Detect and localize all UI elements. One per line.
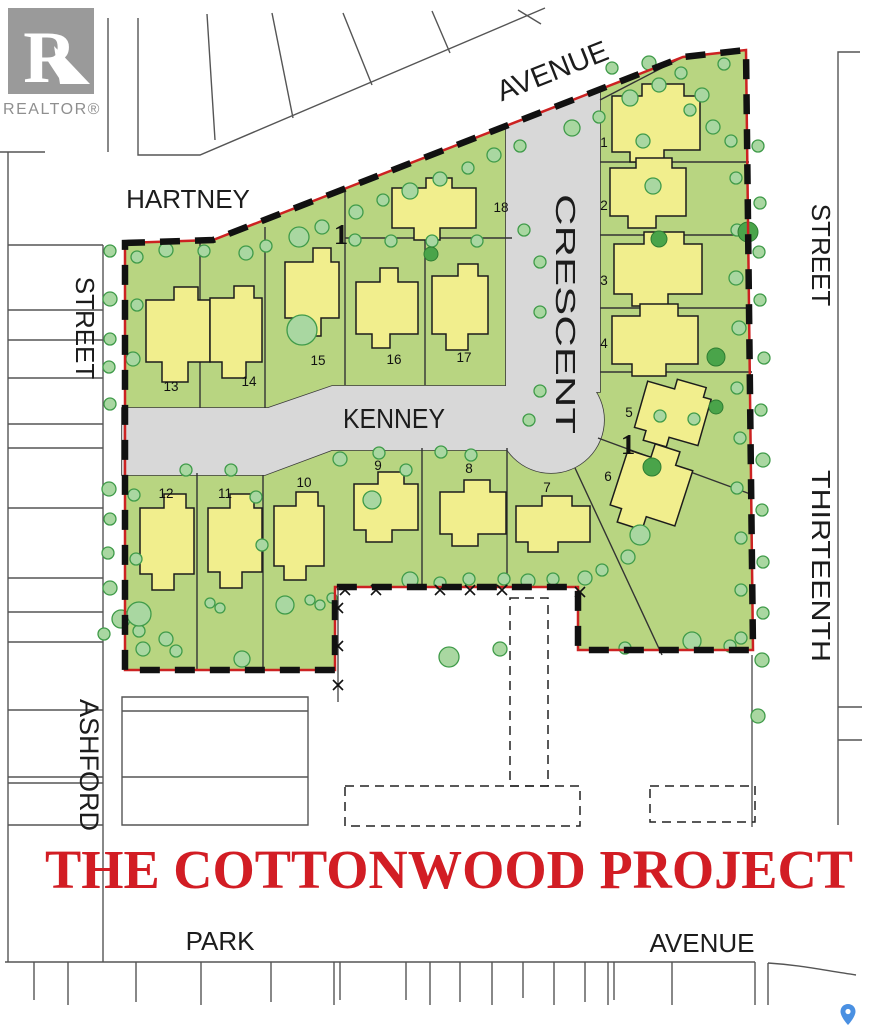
lot-number-18: 18	[493, 200, 508, 215]
lot-number-3: 3	[600, 273, 608, 288]
plat-map: R REALTOR® AVENUE HARTNEY CRESCENT STREE…	[0, 0, 878, 1032]
lot-number-1: 1	[600, 135, 608, 150]
block-number: 1	[621, 429, 636, 461]
street-label-kenney: KENNEY	[343, 403, 445, 434]
lot-number-16: 16	[386, 352, 401, 367]
street-label-ashford: ASHFORD	[74, 699, 104, 831]
realtor-logo-text: REALTOR®	[3, 101, 101, 118]
lot-number-6: 6	[604, 469, 612, 484]
lot-number-2: 2	[600, 198, 608, 213]
street-label-street-right: STREET	[806, 204, 836, 307]
lot-number-14: 14	[241, 374, 257, 389]
lot-number-15: 15	[310, 353, 325, 368]
street-label-crescent: CRESCENT	[550, 194, 581, 434]
lot-number-12: 12	[158, 486, 173, 501]
lot-number-7: 7	[543, 480, 551, 495]
realtor-logo-r: R	[23, 17, 78, 99]
street-label-park: PARK	[186, 926, 256, 956]
realtor-logo: R REALTOR®	[3, 8, 101, 118]
lot-number-9: 9	[374, 458, 382, 473]
lot-number-11: 11	[218, 486, 232, 501]
street-label-avenue-bottom: AVENUE	[650, 928, 755, 958]
lot-number-4: 4	[600, 336, 608, 351]
lot-number-10: 10	[296, 475, 311, 490]
lot-number-8: 8	[465, 461, 473, 476]
lot-number-17: 17	[456, 350, 471, 365]
page-title: THE COTTONWOOD PROJECT	[45, 839, 853, 900]
street-label-street-left: STREET	[70, 277, 100, 380]
block-number: 1	[334, 219, 349, 251]
street-label-hartney: HARTNEY	[126, 184, 250, 214]
street-label-thirteenth: THIRTEENTH	[806, 470, 836, 662]
lot-number-13: 13	[163, 379, 178, 394]
lot-number-5: 5	[625, 405, 633, 420]
